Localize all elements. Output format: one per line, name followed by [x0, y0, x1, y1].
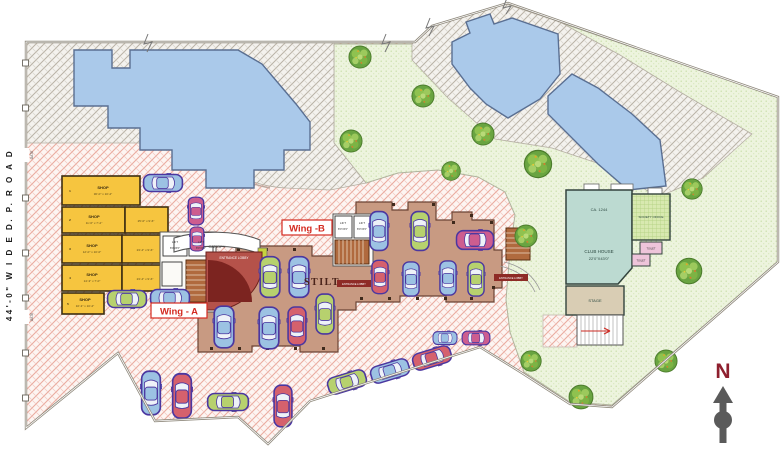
- shop-2-name: SHOP: [88, 214, 100, 219]
- shop-4: [62, 265, 122, 291]
- gate-gap-top: [22, 148, 29, 162]
- shop-2-dims: 11'-6" x 7'-2": [86, 221, 103, 225]
- stair-b: [335, 240, 369, 264]
- tree: [349, 46, 371, 68]
- tree: [515, 225, 537, 247]
- paving-pink-patch: [543, 315, 577, 347]
- shop-2: [62, 207, 125, 233]
- lift-b2-label: LIFT: [359, 221, 365, 225]
- shop-4-name: SHOP: [86, 272, 98, 277]
- svg-text:Wing -B: Wing -B: [289, 224, 325, 235]
- shop-3-name: SHOP: [86, 243, 98, 248]
- car-blue: [258, 307, 280, 349]
- tree: [682, 179, 702, 199]
- stilt-label: STILT: [304, 277, 340, 288]
- car-red: [371, 260, 390, 293]
- shop-4-dims: 14'-3" x 7'-0": [84, 279, 101, 283]
- society-office-label: SOCIETY OFFICE: [639, 215, 664, 219]
- north-arrow: N: [713, 360, 733, 443]
- site-plan-svg: 44'-0" W I D E D. P. R O A D GATE GATE 1…: [0, 0, 780, 453]
- clubhouse-hall: [566, 190, 632, 284]
- tree: [412, 85, 434, 107]
- gate-label-top: GATE: [30, 151, 34, 159]
- toilet-1-label: TOILET: [646, 247, 655, 251]
- car-blue: [439, 261, 458, 295]
- tree: [340, 130, 362, 152]
- toilet-2-label: TOILET: [636, 259, 645, 263]
- car-magenta: [462, 330, 490, 346]
- shop-5-dims: 10'-3" x 10'-2": [76, 304, 94, 308]
- north-arrow-hub: [714, 411, 732, 429]
- car-green: [315, 294, 335, 334]
- shop-3: [62, 235, 122, 263]
- car-red: [171, 374, 192, 418]
- lift-b2: [354, 216, 371, 238]
- gate-gap-bottom: [22, 310, 29, 324]
- entrance-lobby-b-label-1: ENTRANCE LOBBY: [342, 282, 366, 286]
- road-label: 44'-0" W I D E D. P. R O A D: [5, 149, 14, 321]
- lift-a2-dims: 8'0"x5'0": [196, 246, 206, 250]
- clubhouse-area-label: CA. 1244: [591, 207, 608, 212]
- car-green: [108, 289, 147, 309]
- tree: [524, 150, 551, 177]
- car-magenta: [187, 197, 205, 225]
- lift-a1-label: LIFT: [172, 240, 178, 244]
- wing-b-label: Wing -B: [282, 220, 332, 235]
- tree: [676, 258, 702, 284]
- car-blue: [140, 371, 161, 414]
- car-green: [259, 257, 281, 298]
- tree: [472, 123, 494, 145]
- site-plan-canvas: 44'-0" W I D E D. P. R O A D GATE GATE 1…: [0, 0, 780, 453]
- hall-3-dims: 23'-4" x 9'-6": [137, 277, 154, 281]
- lift-a1-dims: 8'0"x5'0": [170, 246, 180, 250]
- north-arrow-head: [713, 386, 733, 403]
- entrance-lobby-b-label-2: ENTRANCE LOBBY: [499, 276, 523, 280]
- svg-text:Wing - A: Wing - A: [160, 307, 198, 318]
- lift-b1-label: LIFT: [340, 221, 346, 225]
- car-green: [410, 212, 430, 251]
- canopy-label: CANOPY: [209, 244, 226, 249]
- shop-1-dims: 30'-0" x 10'-2": [94, 192, 112, 196]
- shop-1: [62, 176, 140, 205]
- lift-a2-label: LIFT: [198, 240, 204, 244]
- north-label: N: [715, 360, 730, 383]
- car-green: [208, 392, 249, 412]
- lift-b1-dims: 8'0"x5'0": [338, 227, 348, 231]
- wing-a-label: Wing - A: [151, 303, 207, 318]
- lift-b2-dims: 8'0"x5'0": [357, 227, 367, 231]
- stage-stairs: [577, 315, 623, 345]
- lift-b1: [335, 216, 352, 238]
- car-red: [287, 307, 307, 345]
- society-porch: [648, 188, 662, 194]
- clubhouse-name: CLUB HOUSE: [584, 249, 613, 254]
- hall-2-dims: 23'-4" x 9'-6": [137, 248, 154, 252]
- clubhouse-dims: 22'0"X43'0": [589, 256, 610, 261]
- car-blue: [369, 212, 389, 251]
- toilet-a: [162, 262, 182, 286]
- tree: [442, 162, 461, 181]
- car-blue: [433, 331, 457, 346]
- shop-1-name: SHOP: [97, 185, 109, 190]
- entrance-lobby-a-label: ENTRANCE LOBBY: [219, 256, 249, 260]
- tree: [521, 351, 541, 371]
- shop-5-name: SHOP: [79, 297, 91, 302]
- shop-3-dims: 12'-0" x 10'-0": [83, 250, 101, 254]
- car-green: [467, 262, 486, 296]
- car-blue: [402, 262, 421, 296]
- car-magenta: [457, 229, 494, 250]
- car-blue: [213, 306, 235, 348]
- gate-label-bottom: GATE: [30, 313, 34, 321]
- car-blue: [144, 173, 183, 193]
- hall-1-dims: 25'-0" x 9'-6": [138, 219, 155, 223]
- stage-label: STAGE: [588, 298, 602, 303]
